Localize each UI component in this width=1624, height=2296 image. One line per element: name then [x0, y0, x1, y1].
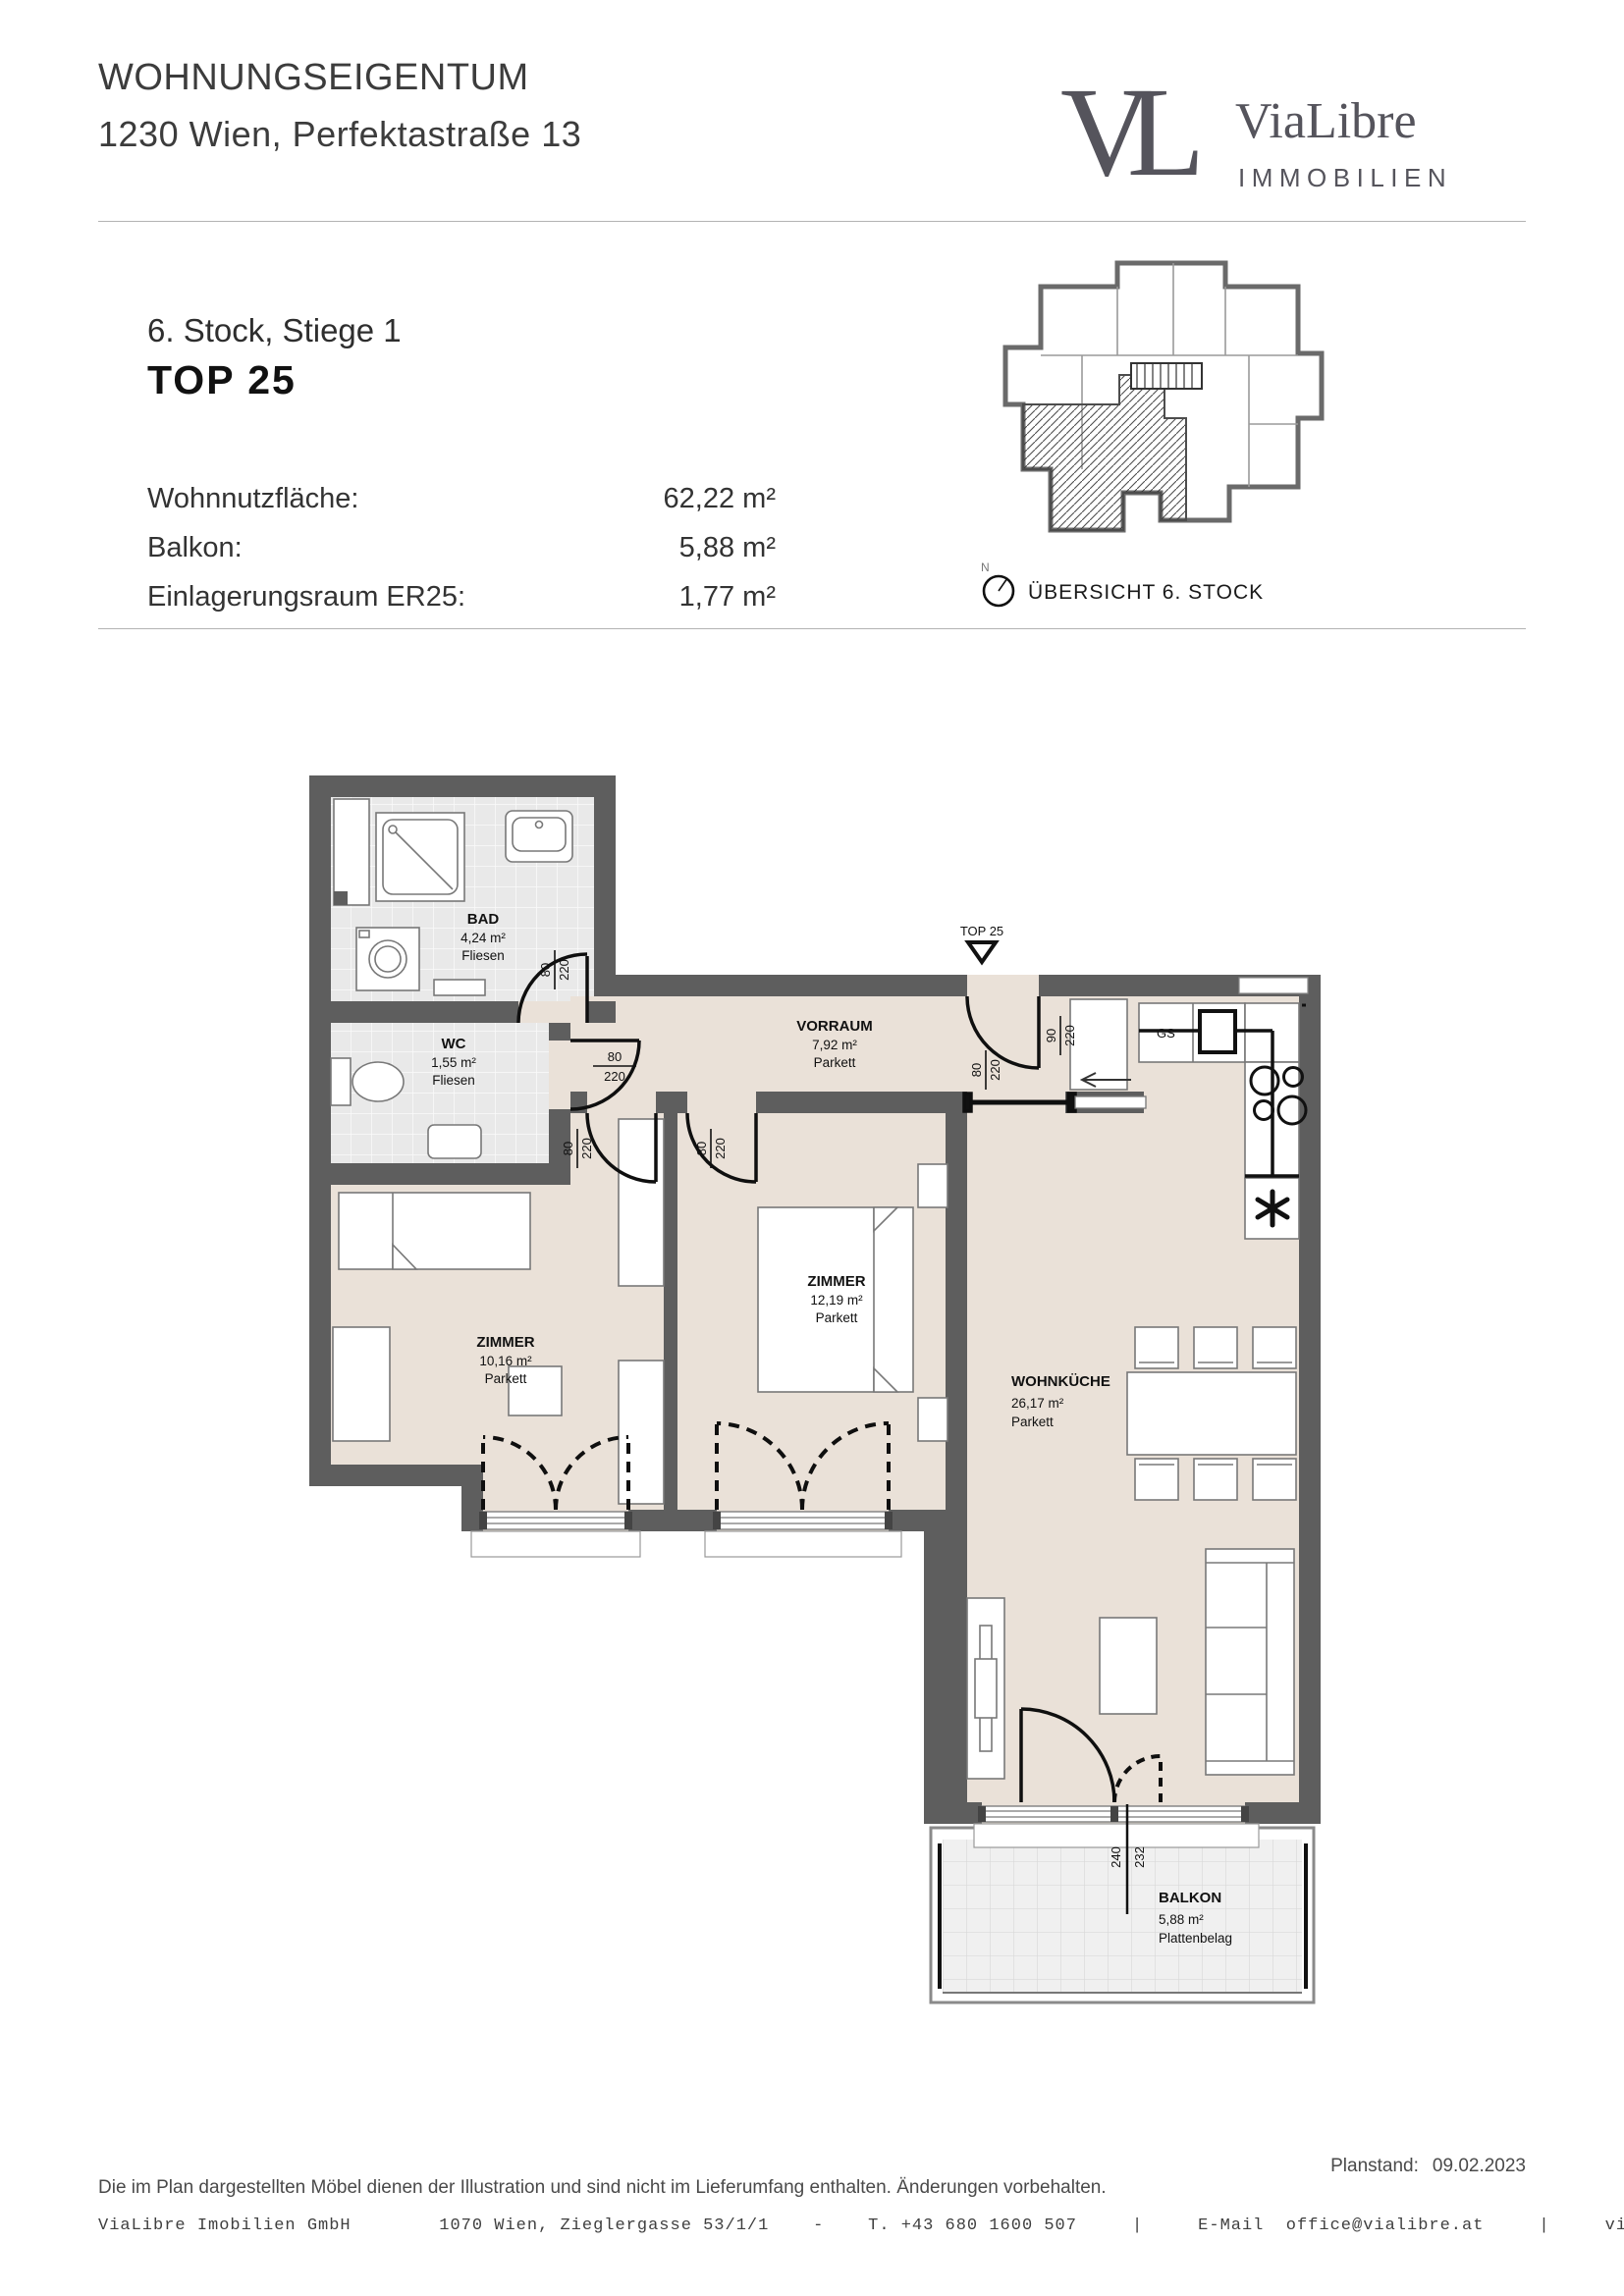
- room-area: 7,92 m²: [812, 1038, 857, 1052]
- room-name: ZIMMER: [807, 1273, 865, 1290]
- compass-icon: N: [981, 561, 1013, 606]
- dim-width: 80: [969, 1063, 984, 1077]
- dim-height: 220: [1062, 1025, 1077, 1046]
- zimmer1-label: ZIMMER 10,16 m² Parkett: [476, 1334, 534, 1386]
- dim-height: 232: [1132, 1846, 1147, 1868]
- room-floor: Parkett: [485, 1371, 527, 1386]
- room-name: BALKON: [1159, 1890, 1221, 1906]
- area-row: Wohnnutzfläche: 62,22 m²: [147, 483, 776, 515]
- area-value: 62,22 m²: [664, 483, 776, 515]
- room-floor: Parkett: [814, 1055, 856, 1070]
- area-row: Einlagerungsraum ER25: 1,77 m²: [147, 581, 776, 614]
- dining-set: [1127, 1327, 1296, 1500]
- nightstand: [918, 1164, 947, 1207]
- dim-height: 220: [713, 1138, 728, 1159]
- washing-machine: [356, 928, 419, 990]
- toilet-bowl: [352, 1062, 404, 1101]
- zimmer1-french-window: [471, 1512, 640, 1557]
- vialibre-logo: VL ViaLibre IMMOBILIEN: [1060, 49, 1532, 211]
- floor-plan-document-page: WOHNUNGSEIGENTUM 1230 Wien, Perfektastra…: [0, 0, 1624, 2296]
- room-floor: Plattenbelag: [1159, 1931, 1232, 1946]
- room-area: 10,16 m²: [479, 1354, 532, 1368]
- logo-monogram: VL: [1060, 62, 1198, 203]
- overview-caption: ÜBERSICHT 6. STOCK: [1028, 581, 1264, 604]
- oven: [1200, 1011, 1235, 1052]
- dining-table: [1127, 1372, 1296, 1455]
- area-value: 5,88 m²: [679, 532, 776, 564]
- overview-stair-core: [1131, 363, 1202, 389]
- coffee-table: [1100, 1618, 1157, 1714]
- room-area: 4,24 m²: [460, 931, 506, 945]
- bath-mat: [434, 980, 485, 995]
- room-floor: Fliesen: [461, 948, 505, 963]
- room-name: BAD: [467, 911, 500, 928]
- plan-date: Planstand: 09.02.2023: [1330, 2156, 1526, 2177]
- page-address: 1230 Wien, Perfektastraße 13: [98, 114, 581, 155]
- wc-sink: [428, 1125, 481, 1158]
- room-area: 5,88 m²: [1159, 1912, 1204, 1927]
- sideboard: [967, 1598, 1004, 1779]
- dim-width: 90: [1044, 1029, 1058, 1042]
- zimmer2-label: ZIMMER 12,19 m² Parkett: [807, 1273, 865, 1325]
- footer-contact: ViaLibre Imobilien GmbH 1070 Wien, Ziegl…: [98, 2216, 1624, 2235]
- room-name: WOHNKÜCHE: [1011, 1373, 1110, 1390]
- room-floor: Parkett: [816, 1310, 858, 1325]
- nightstand: [918, 1398, 947, 1441]
- footer-disclaimer: Die im Plan dargestellten Möbel dienen d…: [98, 2177, 1107, 2199]
- page-title: WOHNUNGSEIGENTUM: [98, 57, 529, 99]
- entrance-top-label: TOP 25: [960, 924, 1003, 938]
- dim-width: 240: [1109, 1846, 1123, 1868]
- unit-floor-line: 6. Stock, Stiege 1: [147, 312, 402, 349]
- room-name: WC: [442, 1036, 466, 1052]
- sink: [506, 811, 572, 862]
- dim-height: 220: [557, 959, 571, 981]
- main-floorplan: TOP 25 80 220 80 220 80 220 80: [295, 756, 1345, 2032]
- zimmer2-french-window: [705, 1512, 901, 1557]
- single-bed: [339, 1193, 530, 1269]
- header-divider: [98, 221, 1526, 222]
- plan-date-value: 09.02.2023: [1433, 2156, 1526, 2177]
- wardrobe: [619, 1361, 664, 1504]
- overview-mini-floorplan: [972, 238, 1365, 552]
- dishwasher-label: GS: [1157, 1026, 1175, 1041]
- overview-caption-row: N ÜBERSICHT 6. STOCK: [977, 558, 1448, 616]
- logo-name: ViaLibre: [1235, 93, 1417, 149]
- dim-width: 80: [538, 963, 553, 977]
- toilet-tank: [331, 1058, 351, 1105]
- dim-height: 220: [988, 1059, 1002, 1081]
- compass-north-label: N: [981, 561, 990, 574]
- room-name: VORRAUM: [796, 1018, 873, 1035]
- balcony-door-window: [974, 1806, 1259, 1847]
- area-label: Wohnnutzfläche:: [147, 483, 359, 515]
- room-floor: Fliesen: [432, 1073, 475, 1088]
- info-divider: [98, 628, 1526, 629]
- area-row: Balkon: 5,88 m²: [147, 532, 776, 564]
- dim-width: 80: [561, 1142, 575, 1155]
- bath-niche: [334, 799, 369, 905]
- entry-closet: [1070, 999, 1127, 1090]
- logo-subtitle: IMMOBILIEN: [1238, 163, 1452, 192]
- entrance-marker: TOP 25: [960, 924, 1003, 962]
- room-area: 12,19 m²: [810, 1293, 863, 1308]
- desk: [333, 1327, 390, 1441]
- dim-height: 220: [579, 1138, 594, 1159]
- plan-date-label: Planstand:: [1330, 2156, 1419, 2177]
- room-name: ZIMMER: [476, 1334, 534, 1351]
- shower: [376, 813, 464, 901]
- area-label: Einlagerungsraum ER25:: [147, 581, 465, 614]
- area-label: Balkon:: [147, 532, 243, 564]
- room-area: 26,17 m²: [1011, 1396, 1064, 1411]
- dim-width: 80: [694, 1142, 709, 1155]
- area-table: Wohnnutzfläche: 62,22 m² Balkon: 5,88 m²…: [147, 483, 776, 630]
- sofa: [1206, 1549, 1294, 1775]
- area-value: 1,77 m²: [679, 581, 776, 614]
- room-floor: Parkett: [1011, 1415, 1054, 1429]
- unit-top-label: TOP 25: [147, 357, 297, 403]
- dim-width: 80: [608, 1049, 622, 1064]
- room-area: 1,55 m²: [431, 1055, 476, 1070]
- dim-height: 220: [604, 1069, 625, 1084]
